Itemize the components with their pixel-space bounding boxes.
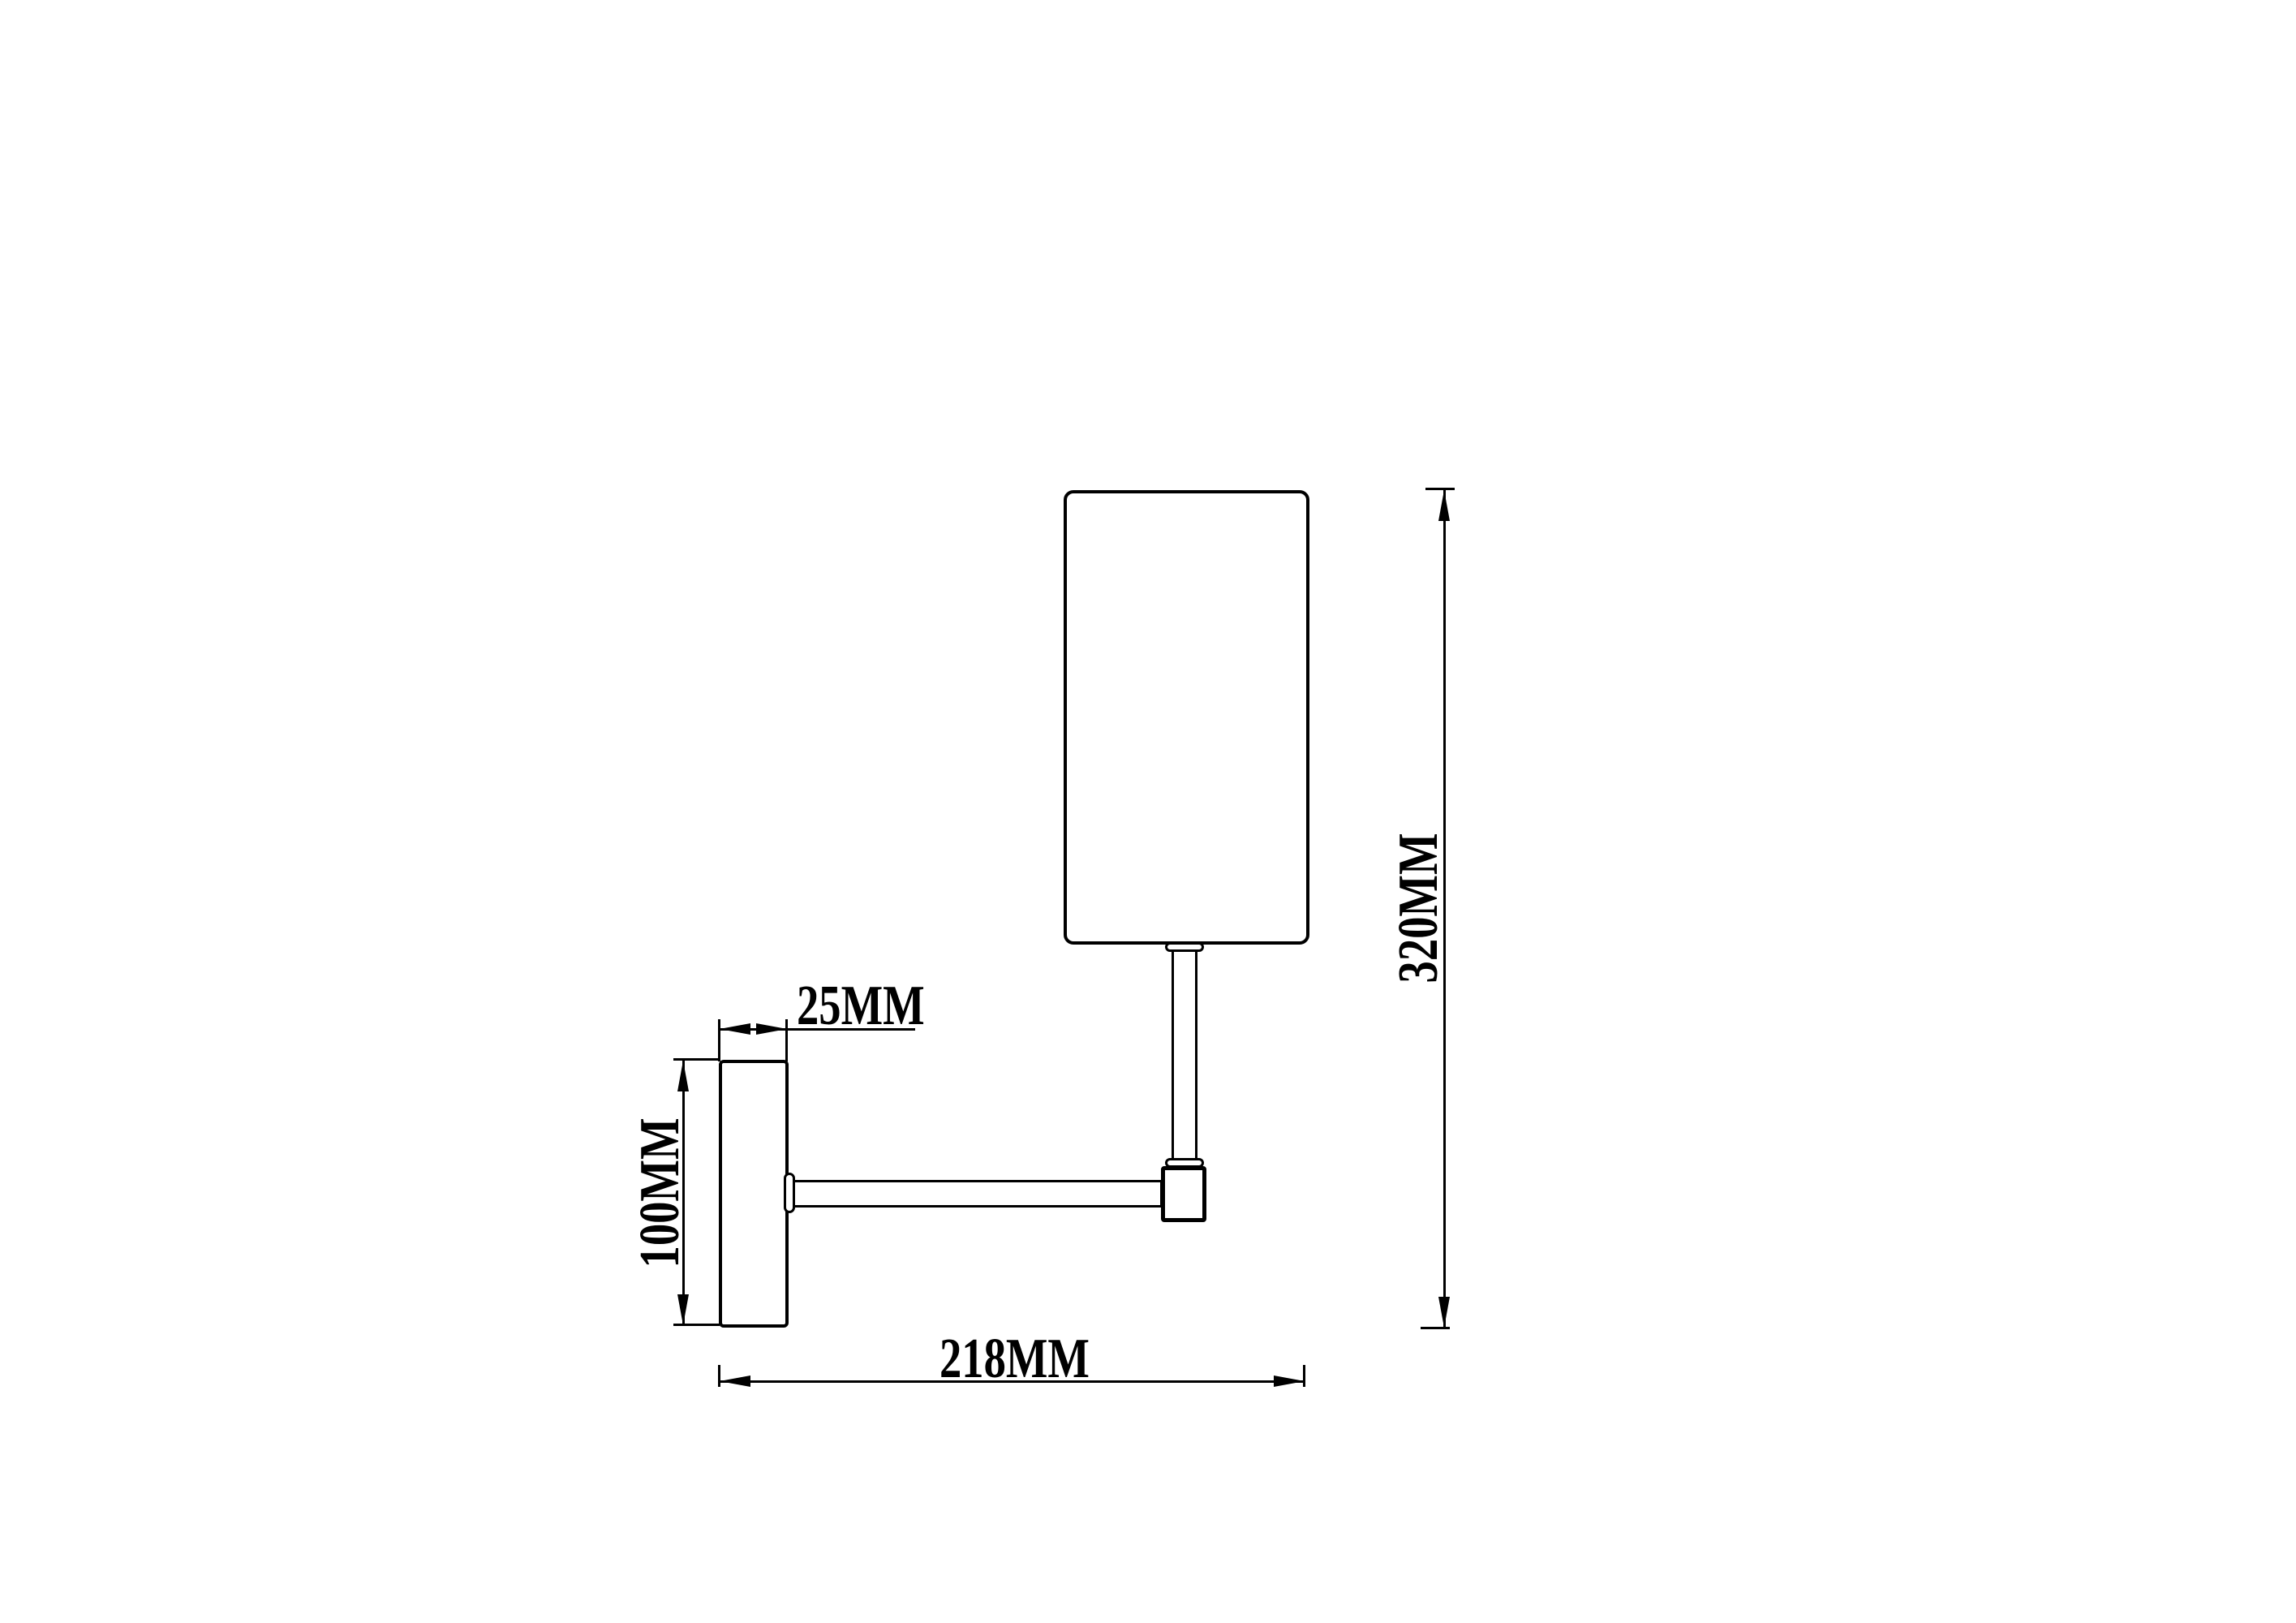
dimension-label-25mm: 25MM xyxy=(797,978,925,1035)
dimension-label-320mm: 320MM xyxy=(1391,833,1447,984)
arrowhead-right-icon xyxy=(1274,1375,1305,1387)
technical-drawing-canvas: 25MM 100MM 218MM 320MM xyxy=(0,0,2296,1623)
arm-wall-end-cap xyxy=(784,1173,795,1213)
arrowhead-up-icon xyxy=(1438,490,1450,521)
dimension-label-100mm: 100MM xyxy=(632,1118,689,1268)
arrowhead-left-icon xyxy=(720,1023,750,1035)
arrowhead-down-icon xyxy=(677,1294,689,1325)
arm-joint-block xyxy=(1161,1166,1206,1222)
horizontal-arm xyxy=(786,1180,1163,1208)
arrowhead-right-icon xyxy=(756,1023,787,1035)
dimension-label-218mm: 218MM xyxy=(939,1331,1090,1388)
stem-top-collar xyxy=(1165,942,1204,952)
lamp-shade-outline xyxy=(1064,490,1309,945)
arrowhead-down-icon xyxy=(1438,1297,1450,1328)
vertical-stem xyxy=(1172,949,1197,1162)
arrowhead-left-icon xyxy=(720,1375,750,1387)
wall-mount-plate xyxy=(719,1060,789,1328)
arrowhead-up-icon xyxy=(677,1061,689,1091)
